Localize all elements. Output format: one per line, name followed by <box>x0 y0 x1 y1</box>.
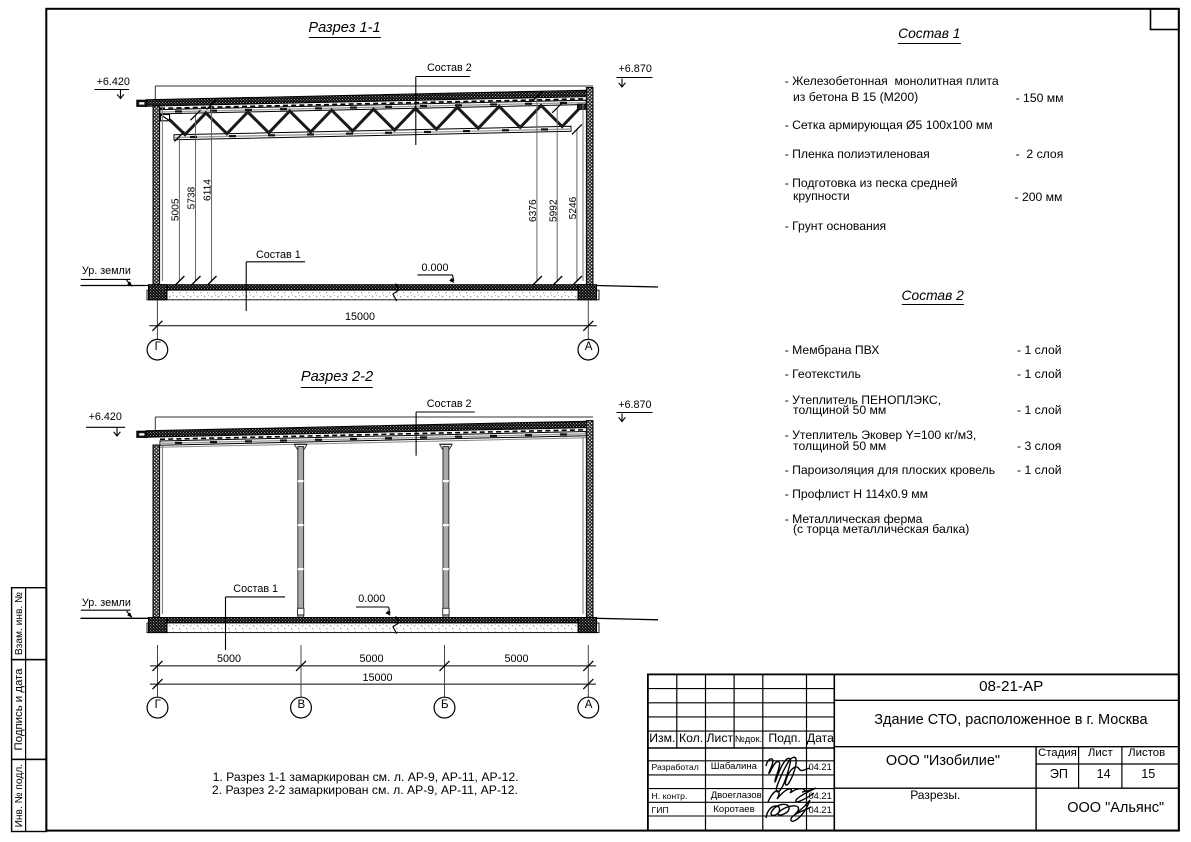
svg-text:5246: 5246 <box>568 196 579 219</box>
svg-text:6114: 6114 <box>203 179 214 201</box>
svg-text:Подпись и дата: Подпись и дата <box>13 668 25 751</box>
svg-text:Инв. № подл.: Инв. № подл. <box>14 764 25 827</box>
svg-text:Взам. инв. №: Взам. инв. № <box>14 592 25 655</box>
svg-text:5992: 5992 <box>548 199 559 222</box>
svg-text:5738: 5738 <box>187 186 198 209</box>
svg-text:6376: 6376 <box>528 199 539 222</box>
svg-text:5005: 5005 <box>171 198 182 221</box>
